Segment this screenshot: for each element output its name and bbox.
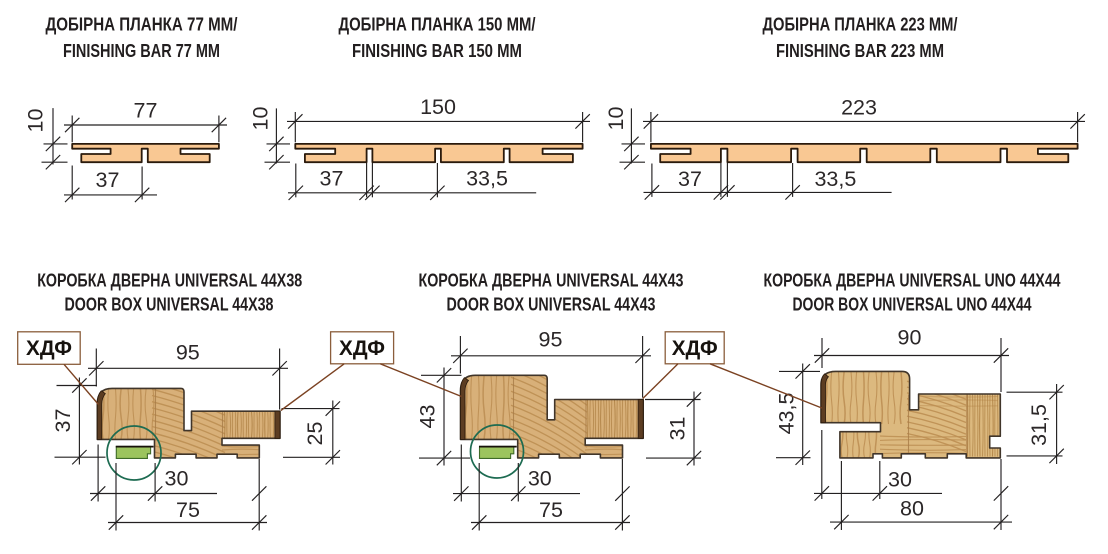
svg-text:ХДФ: ХДФ [672, 337, 718, 360]
svg-text:КОРОБКА ДВЕРНА UNIVERSAL UNO 4: КОРОБКА ДВЕРНА UNIVERSAL UNO 44Х44 [764, 271, 1061, 291]
svg-text:77: 77 [134, 99, 158, 123]
svg-text:37: 37 [96, 168, 120, 192]
svg-text:ДОБІРНА ПЛАНКА 77 ММ/: ДОБІРНА ПЛАНКА 77 ММ/ [46, 15, 238, 35]
svg-text:10: 10 [249, 107, 273, 131]
svg-text:30: 30 [888, 468, 912, 492]
svg-text:30: 30 [528, 467, 552, 491]
svg-text:10: 10 [604, 107, 628, 131]
svg-text:ХДФ: ХДФ [339, 337, 385, 360]
svg-text:33,5: 33,5 [466, 167, 508, 191]
svg-text:37: 37 [51, 409, 75, 433]
svg-text:150: 150 [420, 95, 456, 119]
svg-text:43: 43 [416, 405, 440, 429]
svg-text:КОРОБКА ДВЕРНА UNIVERSAL 44Х43: КОРОБКА ДВЕРНА UNIVERSAL 44Х43 [419, 271, 684, 291]
svg-text:КОРОБКА ДВЕРНА UNIVERSAL 44Х38: КОРОБКА ДВЕРНА UNIVERSAL 44Х38 [37, 271, 302, 291]
svg-text:10: 10 [24, 109, 48, 133]
svg-text:80: 80 [900, 497, 924, 521]
svg-text:FINISHING BAR 77 MM: FINISHING BAR 77 MM [63, 41, 220, 61]
svg-text:DOOR BOX UNIVERSAL 44Х43: DOOR BOX UNIVERSAL 44Х43 [447, 295, 656, 315]
svg-text:75: 75 [176, 498, 200, 522]
svg-text:95: 95 [539, 328, 563, 352]
svg-text:90: 90 [898, 326, 922, 350]
svg-text:31,5: 31,5 [1027, 404, 1051, 446]
svg-text:223: 223 [841, 96, 877, 120]
svg-text:ХДФ: ХДФ [26, 337, 72, 360]
svg-text:FINISHING BAR 150 MM: FINISHING BAR 150 MM [352, 41, 522, 61]
svg-text:37: 37 [678, 167, 702, 191]
svg-text:37: 37 [320, 167, 344, 191]
svg-text:30: 30 [165, 467, 189, 491]
svg-text:DOOR BOX UNIVERSAL 44Х38: DOOR BOX UNIVERSAL 44Х38 [65, 295, 274, 315]
svg-text:25: 25 [303, 422, 327, 446]
svg-text:75: 75 [539, 498, 563, 522]
svg-text:DOOR BOX UNIVERSAL UNO 44Х44: DOOR BOX UNIVERSAL UNO 44Х44 [793, 295, 1032, 315]
svg-text:31: 31 [666, 417, 690, 441]
svg-text:33,5: 33,5 [814, 167, 856, 191]
svg-text:ДОБІРНА ПЛАНКА 150 ММ/: ДОБІРНА ПЛАНКА 150 ММ/ [339, 15, 536, 35]
svg-text:FINISHING BAR 223 MM: FINISHING BAR 223 MM [776, 41, 944, 61]
svg-text:ДОБІРНА ПЛАНКА 223 ММ/: ДОБІРНА ПЛАНКА 223 ММ/ [763, 15, 958, 35]
svg-text:95: 95 [176, 341, 200, 365]
svg-text:43,5: 43,5 [775, 393, 799, 435]
